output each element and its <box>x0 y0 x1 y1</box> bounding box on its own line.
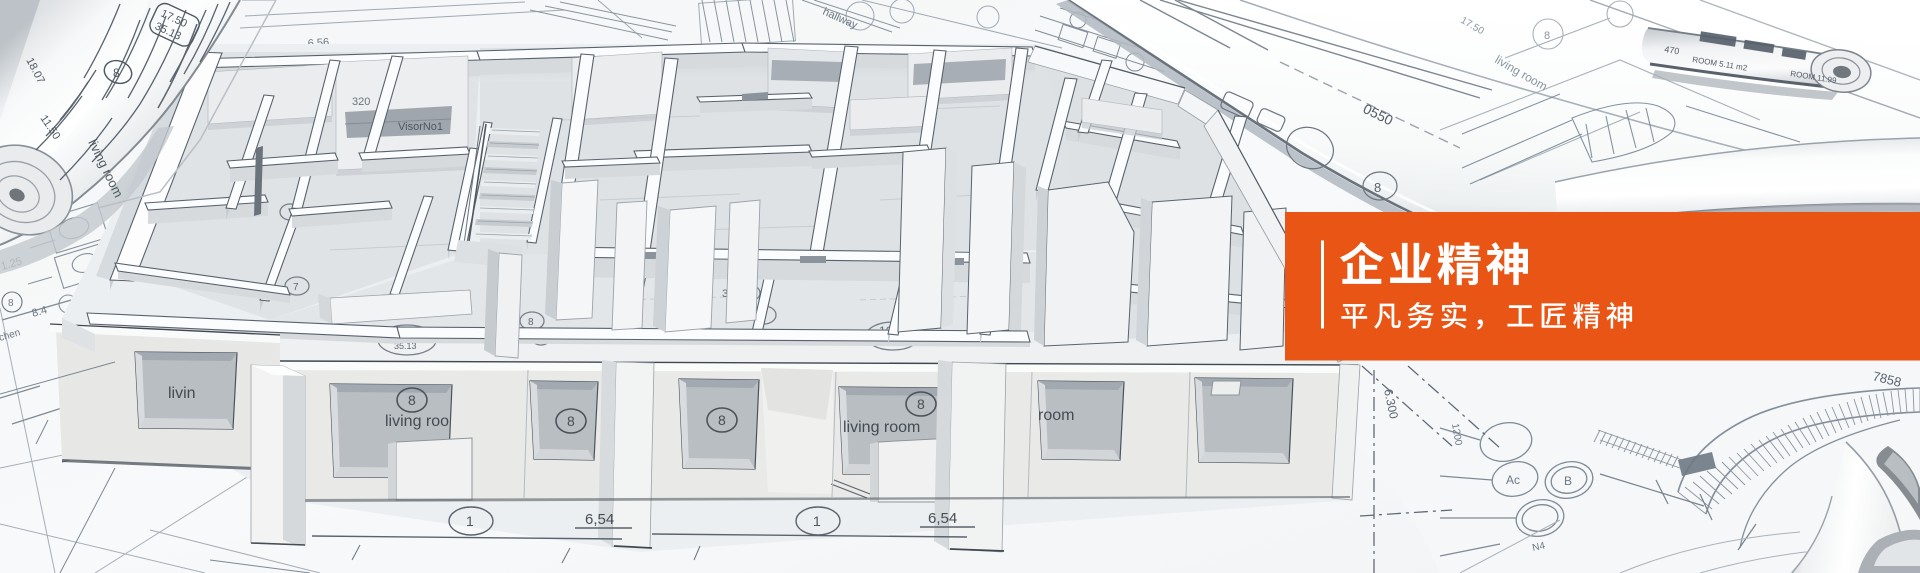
svg-text:8: 8 <box>8 298 14 309</box>
svg-text:7: 7 <box>293 282 299 293</box>
svg-text:8: 8 <box>1544 30 1550 42</box>
svg-text:8: 8 <box>408 392 416 408</box>
svg-text:1: 1 <box>466 513 474 529</box>
svg-text:8: 8 <box>718 412 726 428</box>
svg-text:B: B <box>1564 474 1572 488</box>
svg-text:8: 8 <box>113 66 120 80</box>
svg-text:living roo: living roo <box>385 413 449 430</box>
svg-text:8: 8 <box>528 317 534 328</box>
svg-text:6,54: 6,54 <box>585 511 614 528</box>
svg-text:VisorNo1: VisorNo1 <box>398 121 443 133</box>
svg-text:livin: livin <box>168 385 196 402</box>
svg-text:8: 8 <box>567 413 575 429</box>
svg-text:8: 8 <box>917 396 925 412</box>
svg-text:room: room <box>1038 407 1074 424</box>
svg-text:320: 320 <box>352 96 370 108</box>
svg-text:living room: living room <box>843 419 920 436</box>
svg-text:1: 1 <box>813 513 821 529</box>
svg-text:Ac: Ac <box>1506 473 1520 487</box>
svg-text:8: 8 <box>1374 180 1381 195</box>
svg-text:6,54: 6,54 <box>928 510 957 527</box>
